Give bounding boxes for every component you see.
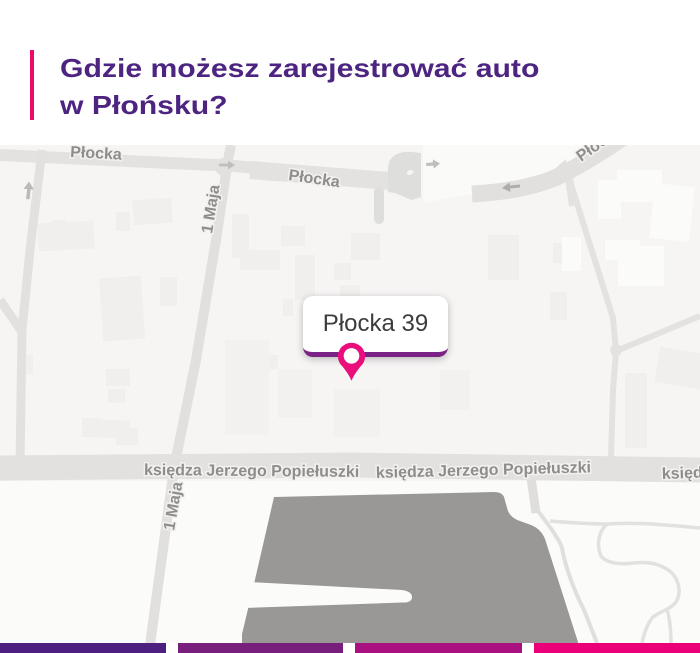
svg-text:księdza Jerzego Popiełuszki: księdza Jerzego Popiełuszki — [144, 462, 359, 481]
svg-text:księdza: księdza — [662, 464, 700, 483]
svg-text:Płocka: Płocka — [70, 145, 123, 164]
